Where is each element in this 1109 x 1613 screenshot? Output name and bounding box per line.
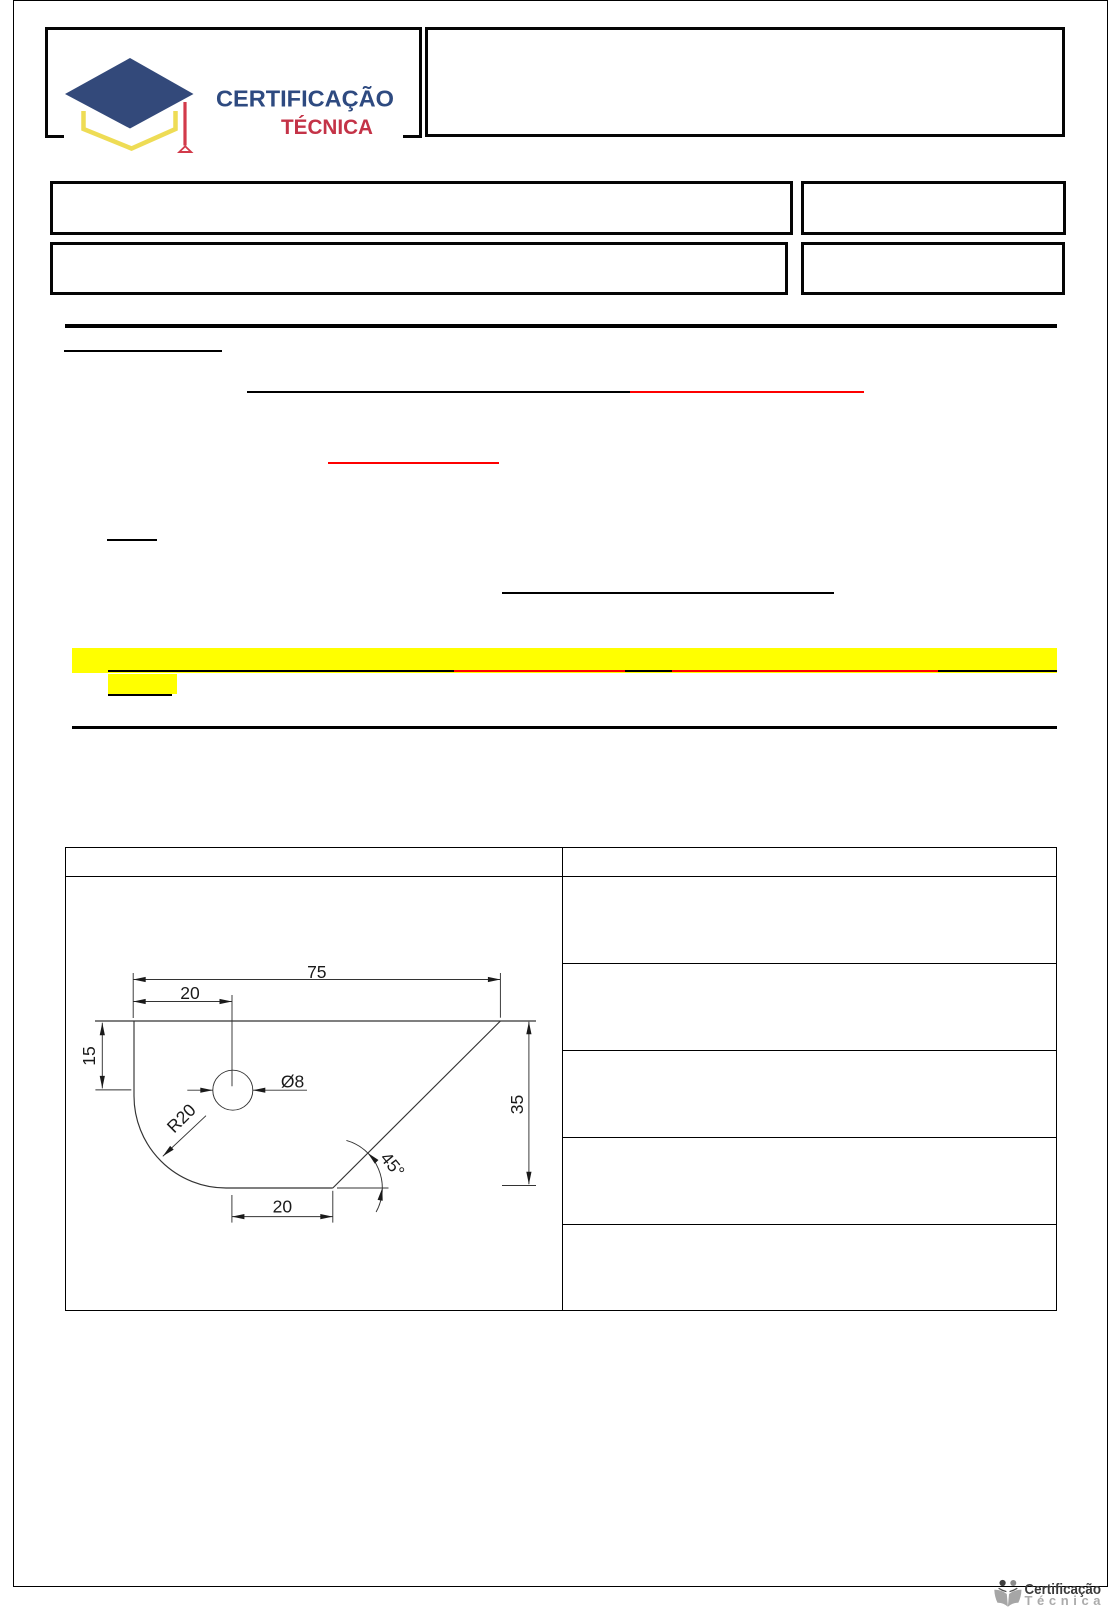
- svg-text:TÉCNICA: TÉCNICA: [281, 116, 373, 139]
- svg-text:20: 20: [180, 983, 200, 1003]
- svg-text:CERTIFICAÇÃO: CERTIFICAÇÃO: [216, 85, 394, 112]
- svg-text:20: 20: [273, 1197, 293, 1217]
- svg-text:35: 35: [507, 1095, 527, 1114]
- svg-text:Ø8: Ø8: [281, 1072, 304, 1092]
- svg-text:R20: R20: [163, 1100, 200, 1137]
- svg-text:15: 15: [79, 1046, 99, 1065]
- svg-text:75: 75: [307, 962, 326, 982]
